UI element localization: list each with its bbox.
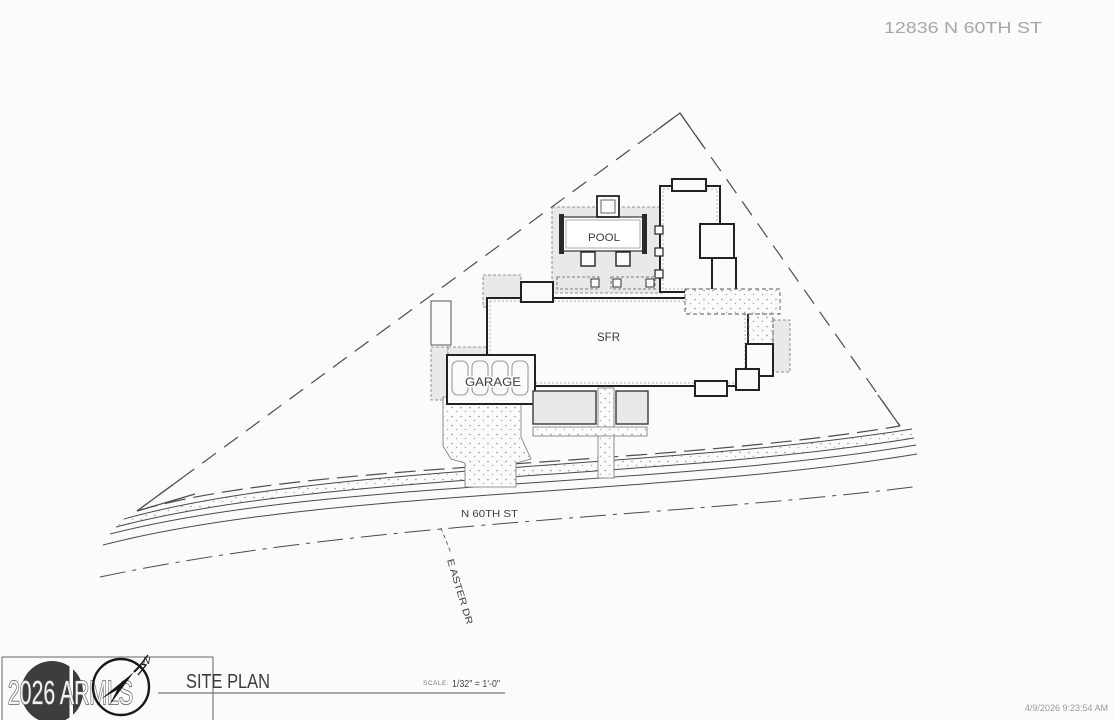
title-block: 2026 ARMLS N SITE PLAN SCALE: 1/32" = 1'…	[2, 655, 505, 720]
watermark-text: 2026 ARMLS	[8, 674, 133, 711]
scale-value: 1/32" = 1'-0"	[452, 678, 500, 690]
sfr-label: SFR	[597, 332, 620, 344]
pool-label: POOL	[588, 232, 620, 244]
main-street-label: N 60TH ST	[461, 508, 519, 520]
site-plan-drawing: POOL SFR GARAGE N 60TH ST E ASTER DR 128…	[0, 0, 1114, 720]
side-street-label: E ASTER DR	[444, 558, 474, 626]
spa	[597, 196, 619, 217]
timestamp: 4/9/2026 9:23:54 AM	[1025, 703, 1108, 713]
north-arrow-label: N	[143, 656, 151, 667]
site-plan-page: POOL SFR GARAGE N 60TH ST E ASTER DR 128…	[0, 0, 1114, 720]
sheet-title: SITE PLAN	[186, 671, 270, 693]
page-address: 12836 N 60TH ST	[884, 20, 1042, 37]
scale-label: SCALE:	[423, 680, 449, 687]
side-street-leader	[441, 528, 451, 553]
garage-label: GARAGE	[465, 377, 521, 389]
courtyards	[533, 391, 648, 424]
